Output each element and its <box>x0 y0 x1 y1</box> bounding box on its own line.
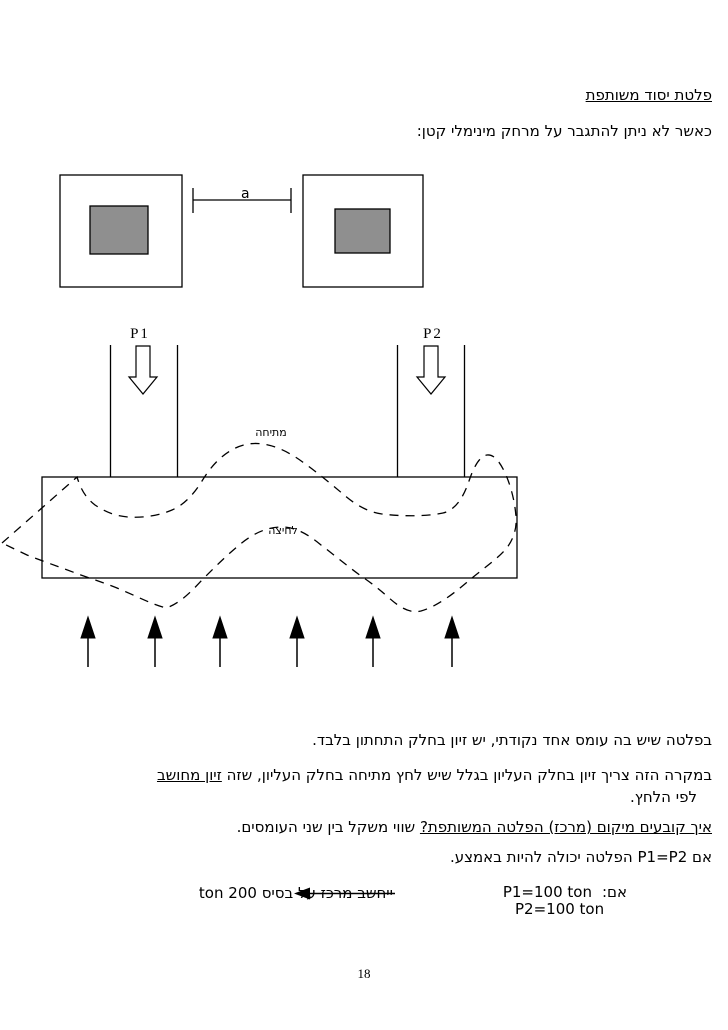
p1-load-arrow-icon <box>129 346 157 394</box>
if-label: אם: <box>602 883 627 901</box>
single-load-note: בפלטה שיש בה עומס אחד נקודתי, יש זיון בח… <box>312 732 712 748</box>
figure-combined-plate: P1 P2 מתיחה לחיצה <box>0 320 728 680</box>
location-answer: שווי משקל בין שני העומסים. <box>237 818 420 836</box>
up-arrow-icon <box>445 617 459 638</box>
p1-value: P1=100 ton <box>503 883 592 901</box>
figure-separate-footings: a <box>0 160 470 300</box>
up-arrow-icon <box>213 617 227 638</box>
dimension-label: a <box>241 186 250 202</box>
load-p2-label: P2 <box>423 326 443 342</box>
up-arrow-icon <box>366 617 380 638</box>
p2-value: P2=100 ton <box>515 901 604 917</box>
left-column-section <box>90 206 148 254</box>
equal-loads-note: אם P1=P2 הפלטה יכולה להיות באמצע. <box>450 849 712 865</box>
location-line: איך קובעים מיקום (מרכז) הפלטה המשותפת? ש… <box>237 819 712 835</box>
up-arrow-icon <box>148 617 162 638</box>
center-note-arrow-icon <box>292 886 400 901</box>
p2-load-arrow-icon <box>417 346 445 394</box>
stress-envelope-curve <box>2 443 516 611</box>
top-reinforcement-cont: לפי הלחץ. <box>630 789 697 805</box>
up-arrow-icon <box>81 617 95 638</box>
right-column-section <box>335 209 390 253</box>
top-reinforcement-line: במקרה הזה צריך זיון בחלק העליון בגלל שיש… <box>157 767 712 783</box>
soil-pressure-arrows <box>81 617 459 667</box>
tension-label: מתיחה <box>255 426 287 439</box>
page-number: 18 <box>0 966 728 982</box>
example-line-1: אם:P1=100 ton <box>503 884 627 900</box>
intro-text: כאשר לא ניתן להתגבר על מרחק מינימלי קטן: <box>417 123 712 139</box>
top-reinforcement-underlined: זיון מחושב <box>157 766 222 784</box>
page-title: פלטת יסוד משותפת <box>586 87 712 103</box>
compression-label: לחיצה <box>268 524 298 537</box>
top-reinforcement-text: במקרה הזה צריך זיון בחלק העליון בגלל שיש… <box>222 766 712 784</box>
location-question: איך קובעים מיקום (מרכז) הפלטה המשותפת? <box>420 818 712 836</box>
up-arrow-icon <box>290 617 304 638</box>
document-page: פלטת יסוד משותפת כאשר לא ניתן להתגבר על … <box>0 0 728 1030</box>
load-p1-label: P1 <box>130 326 150 342</box>
